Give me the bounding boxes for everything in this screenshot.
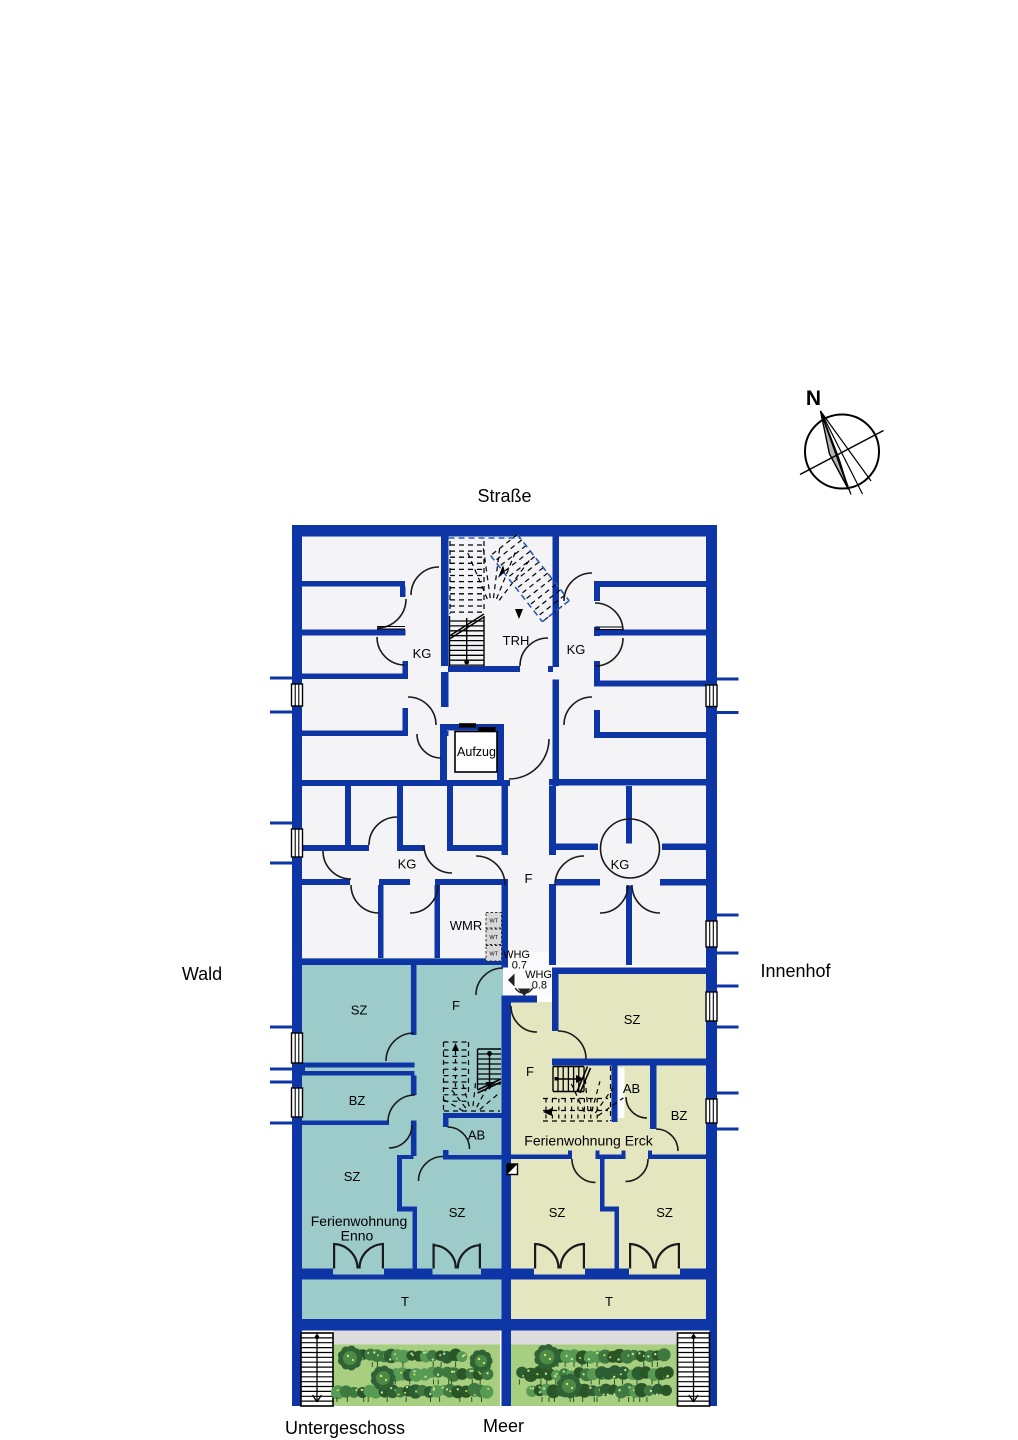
svg-text:SZ: SZ xyxy=(549,1205,566,1220)
svg-text:Innenhof: Innenhof xyxy=(760,961,831,981)
svg-text:SZ: SZ xyxy=(624,1012,641,1027)
svg-text:Enno: Enno xyxy=(341,1228,374,1244)
svg-text:KG: KG xyxy=(398,857,417,872)
svg-text:WT: WT xyxy=(490,935,499,941)
svg-text:F: F xyxy=(452,998,460,1013)
svg-text:SZ: SZ xyxy=(656,1205,673,1220)
svg-text:Wald: Wald xyxy=(182,964,222,984)
svg-text:BZ: BZ xyxy=(349,1093,366,1108)
svg-text:N: N xyxy=(806,387,821,410)
svg-text:WT: WT xyxy=(490,919,499,925)
svg-text:Untergeschoss: Untergeschoss xyxy=(285,1418,405,1438)
svg-text:WT: WT xyxy=(490,952,499,958)
svg-text:T: T xyxy=(605,1294,613,1309)
svg-text:TRH: TRH xyxy=(503,633,530,648)
svg-text:SZ: SZ xyxy=(449,1205,466,1220)
svg-text:AB: AB xyxy=(623,1081,640,1096)
svg-text:BZ: BZ xyxy=(671,1108,688,1123)
svg-text:Meer: Meer xyxy=(483,1416,524,1436)
svg-text:KG: KG xyxy=(413,646,432,661)
svg-text:0.8: 0.8 xyxy=(532,980,547,992)
svg-text:WMR: WMR xyxy=(450,918,483,933)
svg-text:Aufzug: Aufzug xyxy=(457,745,496,759)
svg-text:Straße: Straße xyxy=(477,486,531,506)
svg-text:SZ: SZ xyxy=(344,1169,361,1184)
svg-text:AB: AB xyxy=(468,1128,485,1143)
svg-text:SZ: SZ xyxy=(351,1003,368,1018)
svg-text:KG: KG xyxy=(567,642,586,657)
svg-text:KG: KG xyxy=(611,857,630,872)
svg-text:Ferienwohnung Erck: Ferienwohnung Erck xyxy=(524,1133,653,1149)
svg-text:F: F xyxy=(526,1064,534,1079)
svg-text:F: F xyxy=(525,871,533,886)
svg-text:T: T xyxy=(401,1294,409,1309)
